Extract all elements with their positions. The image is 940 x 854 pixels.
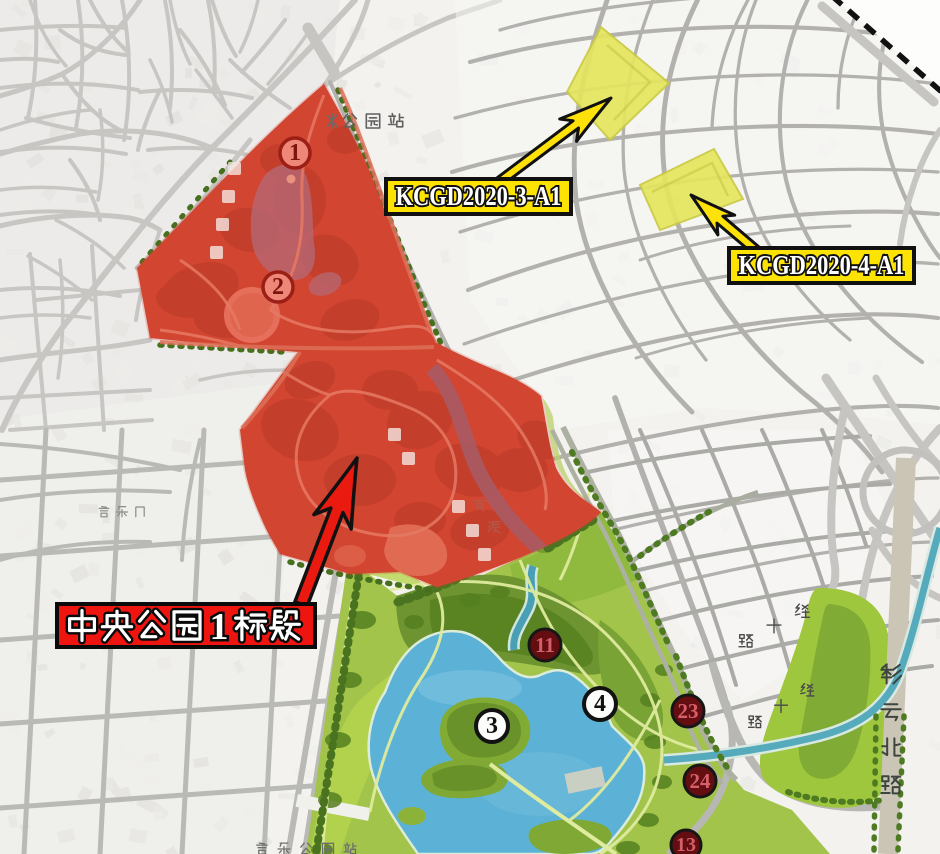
svg-text:13: 13 xyxy=(676,834,696,854)
svg-text:2: 2 xyxy=(272,274,284,300)
svg-text:23: 23 xyxy=(678,699,699,723)
svg-text:3: 3 xyxy=(486,713,498,739)
svg-text:4: 4 xyxy=(594,691,606,717)
svg-text:24: 24 xyxy=(690,769,712,793)
svg-text:KCGD2020-4-A1: KCGD2020-4-A1 xyxy=(739,250,905,280)
svg-text:11: 11 xyxy=(535,633,555,657)
svg-text:1: 1 xyxy=(289,140,301,166)
svg-text:KCGD2020-3-A1: KCGD2020-3-A1 xyxy=(396,181,562,211)
svg-text:1: 1 xyxy=(210,606,229,648)
